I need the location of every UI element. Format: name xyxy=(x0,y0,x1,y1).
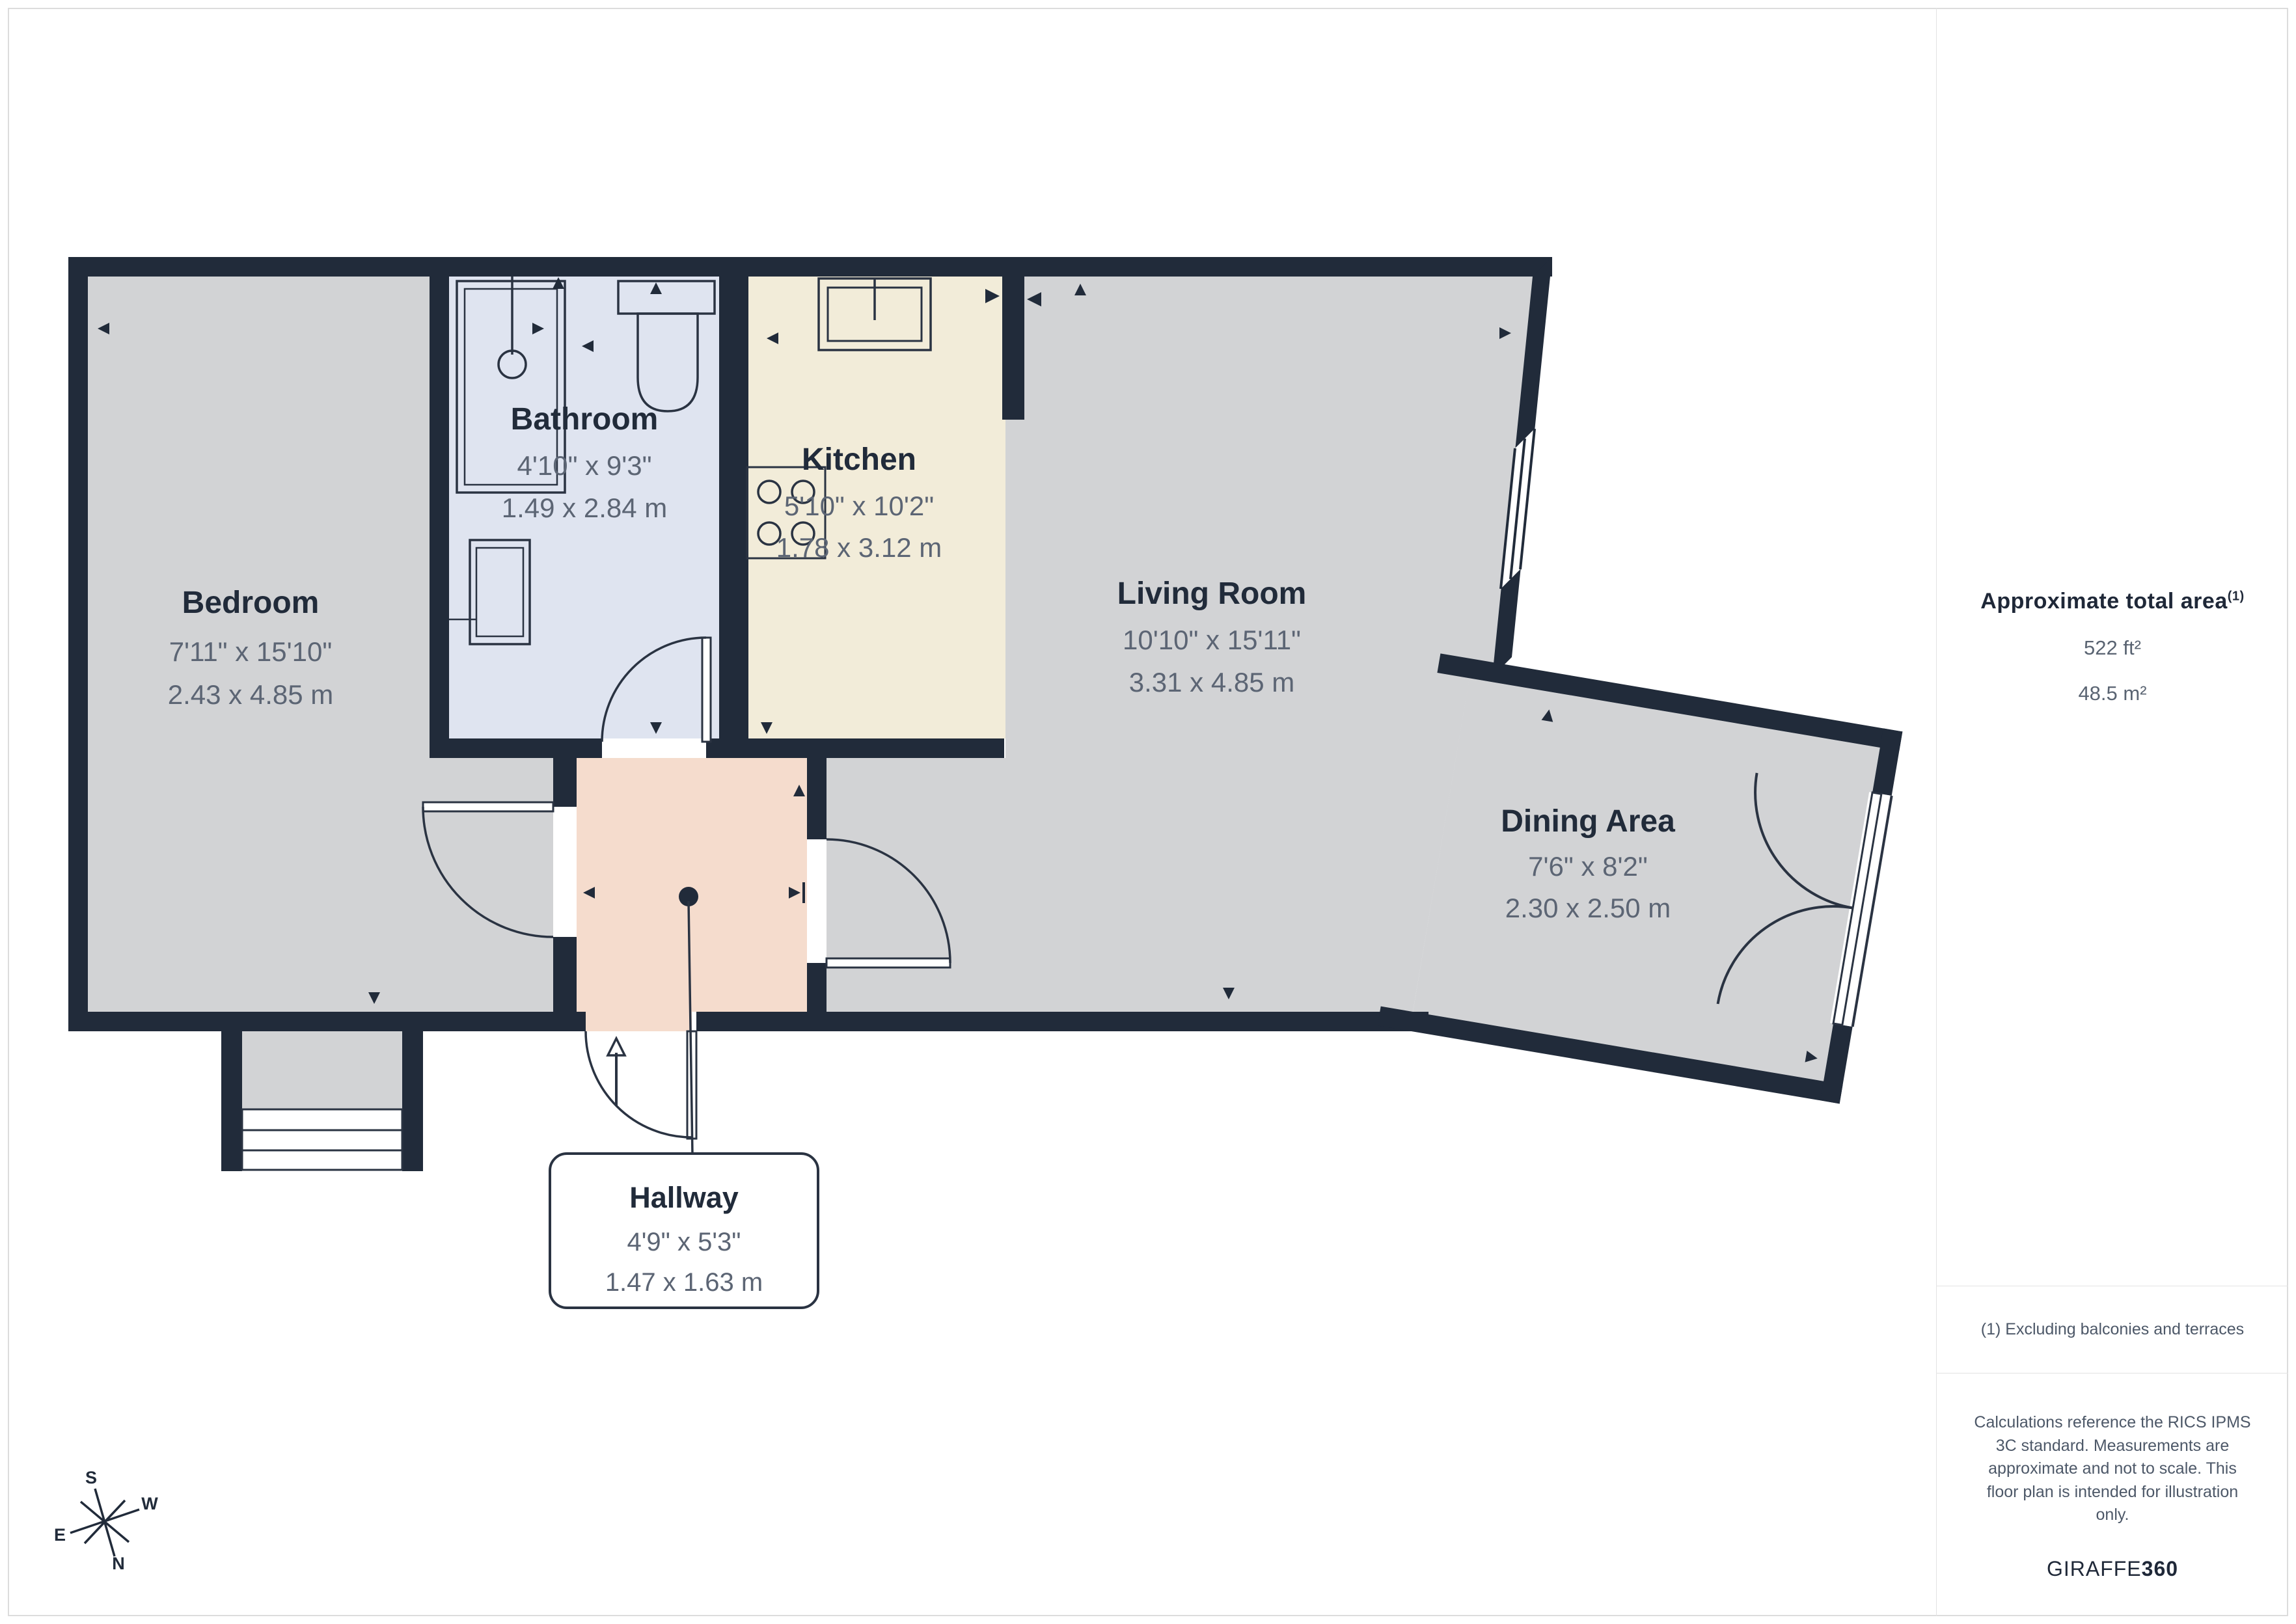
hallway-dim-imperial: 4'9" x 5'3" xyxy=(627,1228,741,1256)
compass-north: N xyxy=(112,1554,125,1573)
disclaimer-section: Calculations reference the RICS IPMS 3C … xyxy=(1937,1373,2288,1616)
floorplan-page: { "rooms": { "bedroom": {"name": "Bedroo… xyxy=(0,0,2296,1624)
entrance-door-arc xyxy=(586,1031,692,1137)
kitchen-dim-metric: 1.78 x 3.12 m xyxy=(776,532,942,563)
total-area-section: Approximate total area(1) 522 ft² 48.5 m… xyxy=(1937,8,2288,1286)
dining-dim-imperial: 7'6" x 8'2" xyxy=(1528,851,1648,882)
hallway-floor xyxy=(577,758,807,1012)
porch-steps xyxy=(242,1109,402,1170)
dining-dim-metric: 2.30 x 2.50 m xyxy=(1505,893,1671,923)
dining-label: Dining Area xyxy=(1501,804,1675,839)
bedroom-label: Bedroom xyxy=(182,586,320,620)
total-area-imperial: 522 ft² xyxy=(2084,636,2141,660)
sidebar: Approximate total area(1) 522 ft² 48.5 m… xyxy=(1936,8,2288,1616)
bathroom-door-leaf xyxy=(702,638,711,742)
porch-floor xyxy=(242,1031,402,1109)
footnote-section: (1) Excluding balconies and terraces xyxy=(1937,1286,2288,1373)
entrance-arrow xyxy=(608,1038,625,1106)
compass-east: E xyxy=(54,1525,66,1545)
compass-west: W xyxy=(141,1494,158,1513)
bathroom-dim-metric: 1.49 x 2.84 m xyxy=(502,493,667,523)
bathroom-label: Bathroom xyxy=(511,402,659,437)
total-area-title: Approximate total area(1) xyxy=(1980,589,2244,614)
living-label: Living Room xyxy=(1117,576,1307,611)
footnote-marker: (1) xyxy=(2228,589,2245,603)
hallway-doorway-floor xyxy=(586,1012,692,1031)
bedroom-dim-metric: 2.43 x 4.85 m xyxy=(168,679,333,710)
compass: S N E W xyxy=(54,1468,158,1573)
compass-south: S xyxy=(85,1468,97,1487)
living-dim-metric: 3.31 x 4.85 m xyxy=(1129,667,1294,697)
bedroom-dim-imperial: 7'11" x 15'10" xyxy=(169,636,333,667)
hall-living-door-leaf xyxy=(827,958,950,968)
brand-logo: GIRAFFE360 xyxy=(2047,1557,2178,1581)
living-dim-imperial: 10'10" x 15'11" xyxy=(1123,625,1301,655)
bathroom-dim-imperial: 4'10" x 9'3" xyxy=(517,450,652,481)
bedroom-door-leaf xyxy=(423,802,553,811)
hallway-dim-metric: 1.47 x 1.63 m xyxy=(605,1268,763,1297)
total-area-metric: 48.5 m² xyxy=(2078,682,2146,705)
footnote-text: (1) Excluding balconies and terraces xyxy=(1981,1320,2244,1339)
kitchen-label: Kitchen xyxy=(802,442,916,477)
hallway-label: Hallway xyxy=(629,1181,739,1214)
kitchen-dim-imperial: 5'10" x 10'2" xyxy=(784,491,934,521)
disclaimer-text: Calculations reference the RICS IPMS 3C … xyxy=(1973,1411,2252,1527)
